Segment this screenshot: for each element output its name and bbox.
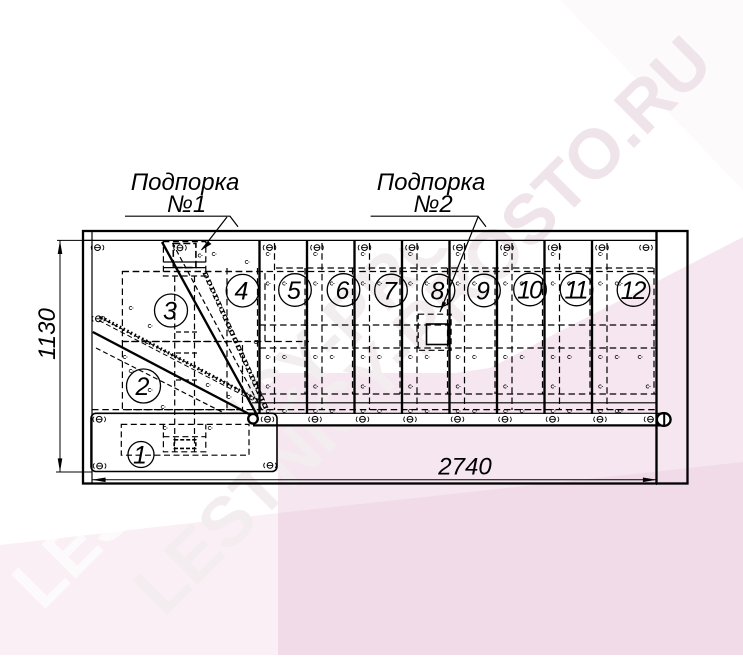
svg-text:2740: 2740 bbox=[437, 454, 492, 481]
svg-text:11: 11 bbox=[565, 277, 587, 305]
svg-text:4: 4 bbox=[235, 278, 249, 306]
svg-text:10: 10 bbox=[517, 277, 543, 305]
svg-text:№2: №2 bbox=[413, 191, 452, 218]
svg-text:6: 6 bbox=[336, 277, 350, 305]
svg-text:8: 8 bbox=[431, 278, 445, 306]
svg-text:2: 2 bbox=[135, 373, 150, 401]
svg-text:1130: 1130 bbox=[34, 308, 61, 360]
svg-text:№1: №1 bbox=[167, 191, 206, 218]
svg-text:9: 9 bbox=[476, 278, 490, 306]
svg-text:1: 1 bbox=[133, 442, 147, 470]
svg-text:7: 7 bbox=[383, 278, 398, 306]
svg-text:3: 3 bbox=[163, 298, 177, 326]
svg-text:12: 12 bbox=[621, 277, 647, 305]
svg-text:5: 5 bbox=[287, 277, 301, 305]
